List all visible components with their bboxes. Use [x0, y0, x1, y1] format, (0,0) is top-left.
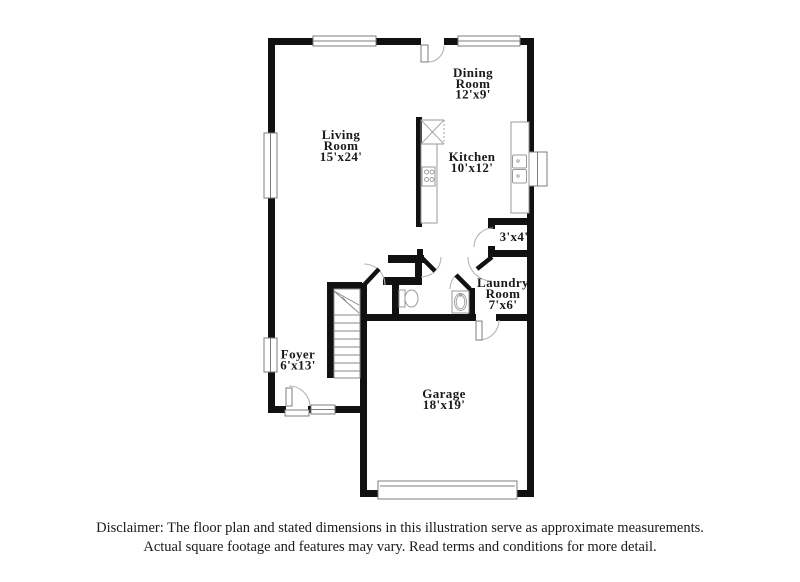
stairs-wall-right	[360, 283, 367, 315]
room-dimensions: 15'x24'	[320, 149, 363, 164]
wall-left	[268, 198, 275, 338]
window	[313, 36, 376, 46]
garage-wall-top	[496, 314, 527, 321]
kitchen-sink	[513, 155, 527, 183]
room-label-garage: Garage 18'x19'	[422, 386, 466, 412]
room-label-closet: 3'x4'	[500, 229, 529, 244]
room-labels: Dining Room 12'x9' Living Room 15'x24' K…	[280, 65, 529, 412]
window	[264, 133, 277, 198]
room-label-laundry: Laundry Room 7'x6'	[477, 275, 529, 312]
window	[311, 405, 335, 414]
bath-wall-left	[392, 285, 399, 316]
room-dimensions: 18'x19'	[423, 397, 466, 412]
wall-garage-left	[360, 315, 367, 497]
disclaimer-text: Disclaimer: The floor plan and stated di…	[0, 519, 800, 557]
kitchen-pantry	[421, 120, 444, 144]
room-dimensions: 6'x13'	[280, 358, 316, 373]
garage-door	[378, 481, 517, 499]
room-dimensions: 10'x12'	[451, 160, 494, 175]
toilet	[399, 290, 418, 307]
wall-left	[268, 38, 275, 133]
kitchen-hall-door	[421, 257, 441, 277]
window	[458, 36, 520, 46]
wall-right	[527, 38, 534, 497]
hall-wall-c	[383, 277, 422, 285]
hall-door	[364, 264, 385, 285]
closet-wall-bottom	[488, 250, 528, 257]
patio-door	[421, 45, 444, 62]
kitchen-window	[528, 152, 547, 186]
stove	[422, 167, 435, 186]
hall-wall-stub	[417, 249, 423, 256]
floor-plan-drawing: Dining Room 12'x9' Living Room 15'x24' K…	[0, 0, 800, 582]
disclaimer-line-2: Actual square footage and features may v…	[0, 538, 800, 557]
garage-wall-top	[362, 314, 476, 321]
wall-top	[444, 38, 458, 45]
front-door-threshold	[285, 410, 309, 416]
wall-top	[376, 38, 421, 45]
stairs-wall-left	[327, 282, 334, 378]
room-label-living: Living Room 15'x24'	[320, 127, 363, 164]
room-label-dining: Dining Room 12'x9'	[453, 65, 493, 102]
front-door	[286, 386, 310, 406]
stairs	[334, 289, 360, 378]
room-label-kitchen: Kitchen 10'x12'	[449, 149, 496, 175]
closet-wall-top	[490, 218, 528, 225]
floor-plan-page: Dining Room 12'x9' Living Room 15'x24' K…	[0, 0, 800, 582]
window	[264, 338, 277, 372]
room-dimensions: 7'x6'	[489, 297, 518, 312]
wall-foyer-bottom	[268, 406, 286, 413]
closet-door	[474, 228, 493, 247]
room-label-foyer: Foyer 6'x13'	[280, 347, 316, 373]
disclaimer-line-1: Disclaimer: The floor plan and stated di…	[0, 519, 800, 538]
garage-entry-door	[476, 320, 499, 340]
windows	[264, 36, 547, 499]
utility-sink	[452, 291, 469, 313]
room-dimensions: 3'x4'	[500, 229, 529, 244]
room-dimensions: 12'x9'	[455, 87, 491, 102]
outer-walls	[268, 38, 534, 497]
closet-jamb-upper	[488, 218, 495, 229]
bathroom-door	[450, 275, 470, 289]
